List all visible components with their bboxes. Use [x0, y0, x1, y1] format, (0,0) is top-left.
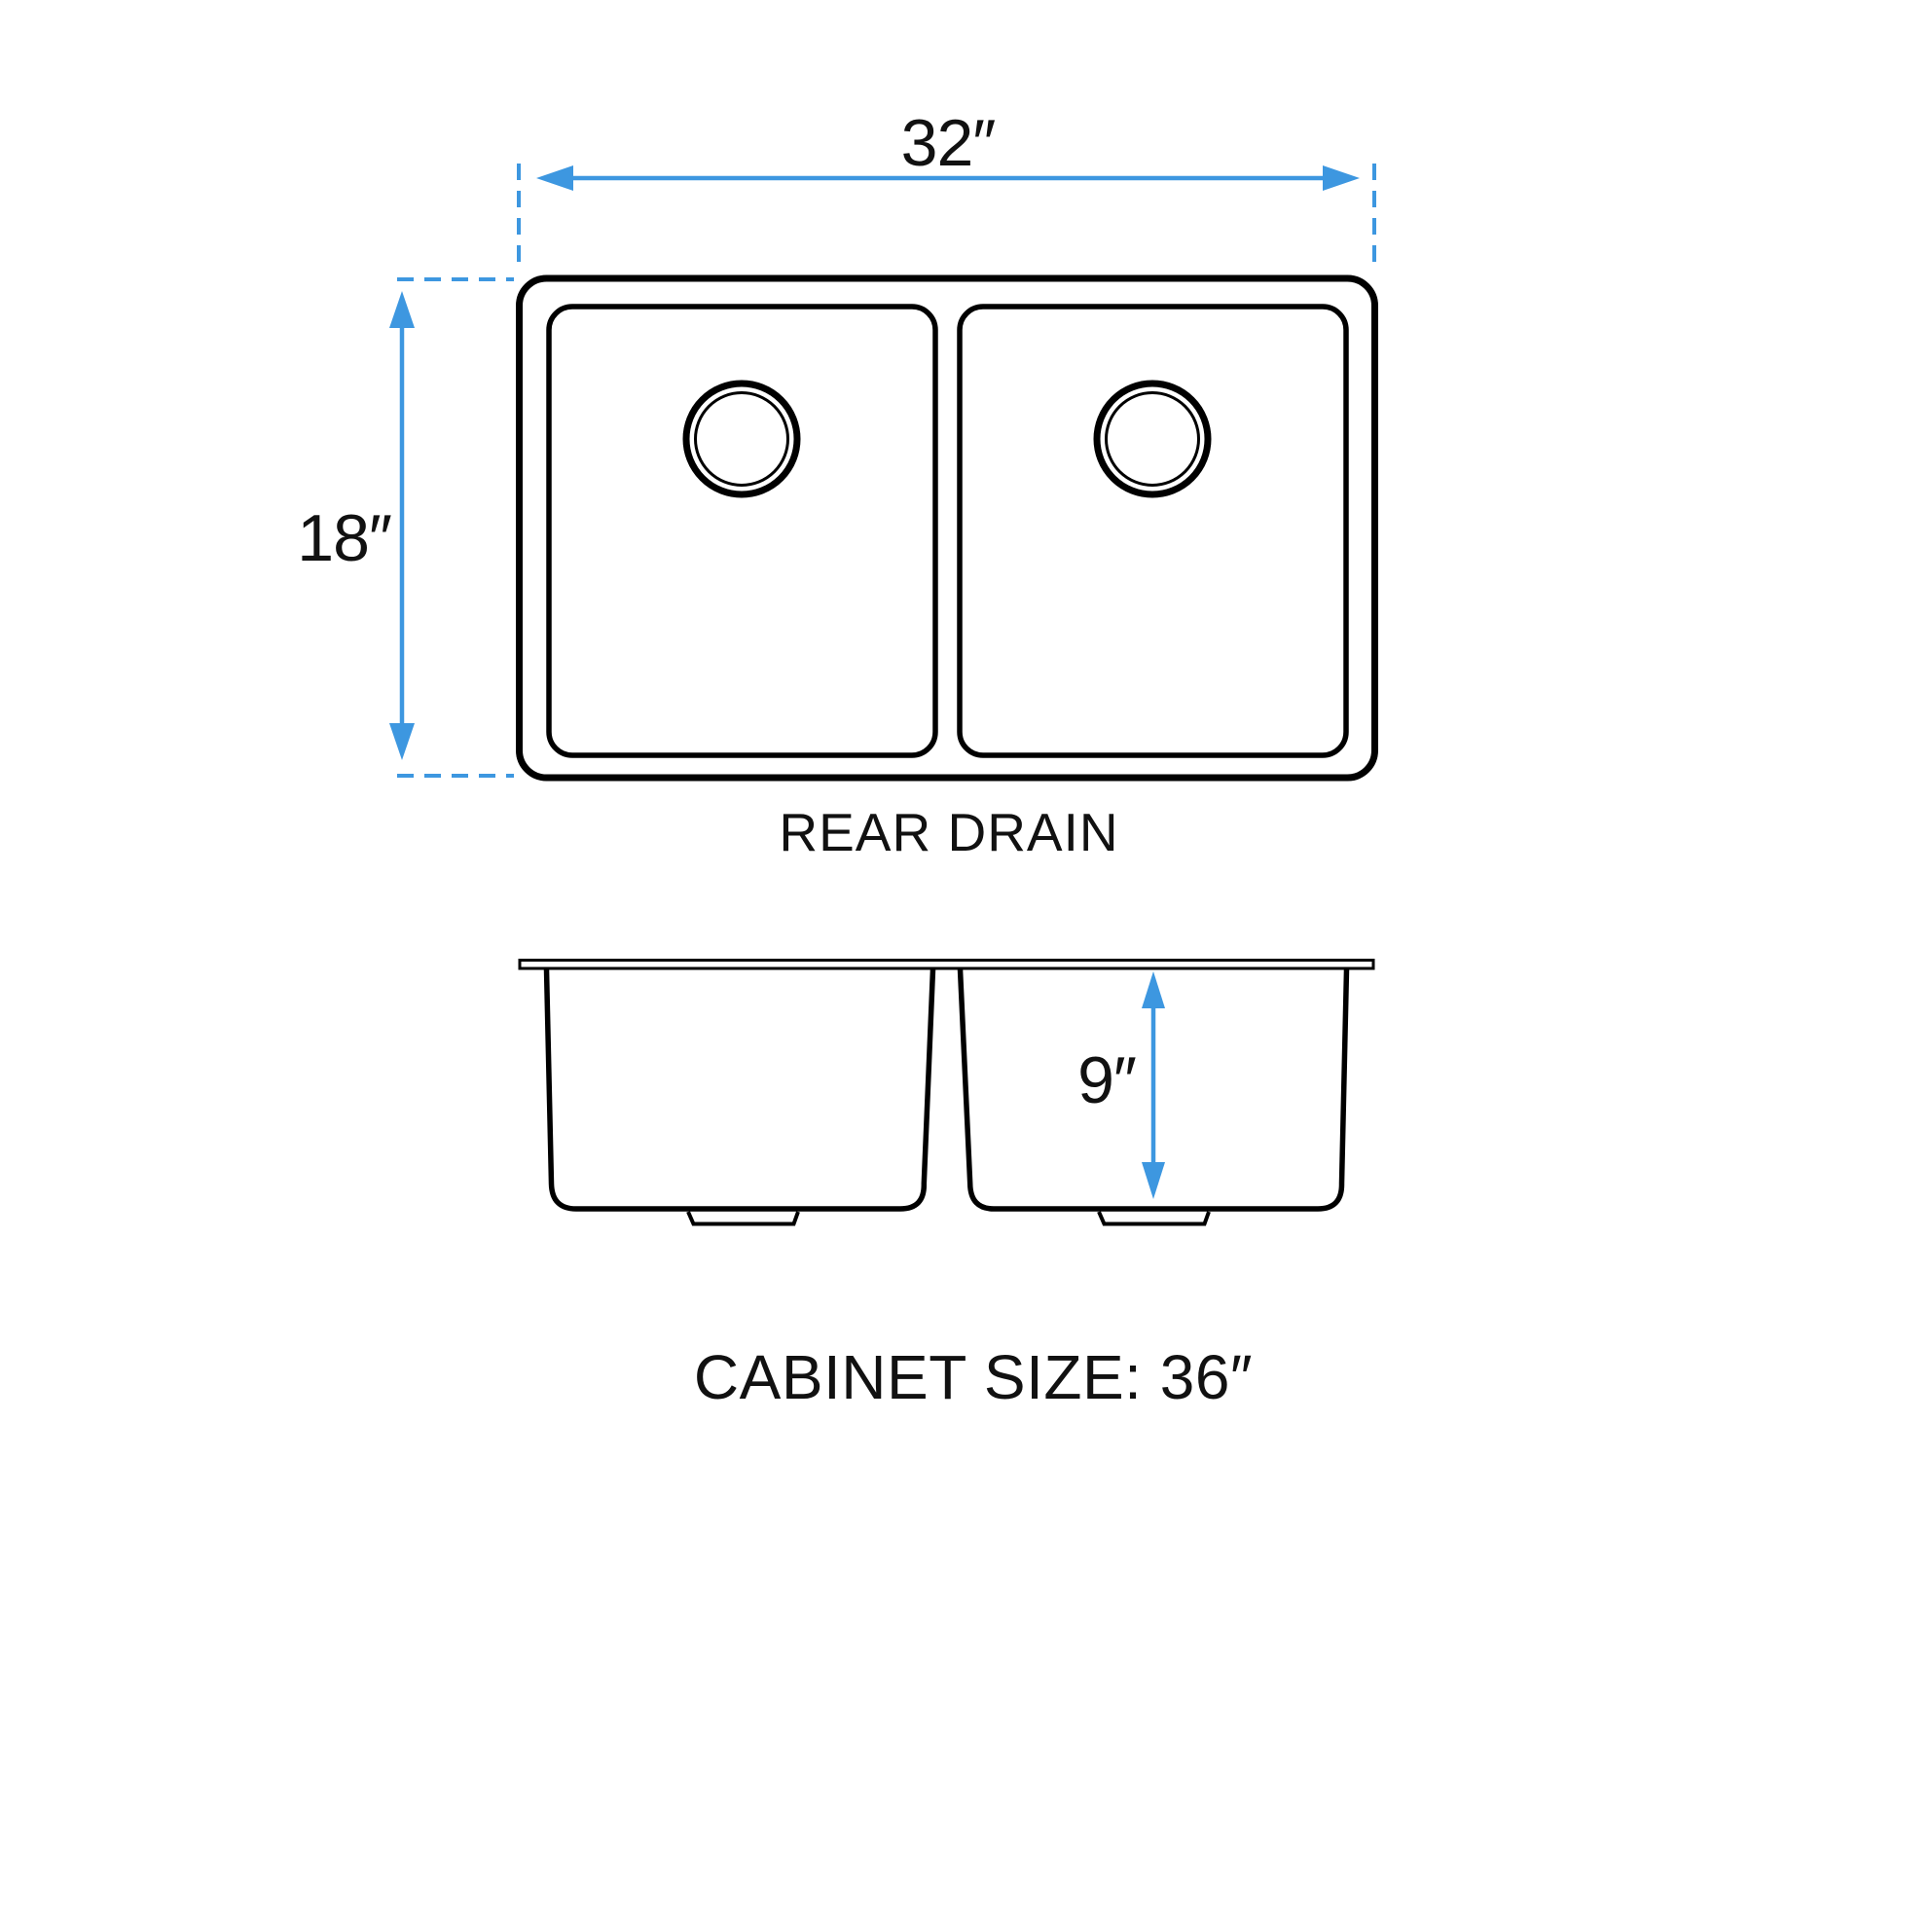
depth-arrowhead-top-icon: [389, 291, 415, 328]
bowl-depth-dimension-label: 9″: [1077, 1043, 1136, 1117]
depth-arrowhead-bottom-icon: [389, 723, 415, 760]
rear-drain-caption: REAR DRAIN: [779, 802, 1118, 862]
right-drain-fitting: [1099, 1212, 1209, 1224]
right-bowl-outline: [960, 307, 1346, 755]
depth-dimension: 18″: [297, 279, 514, 776]
right-drain-ring-icon: [1097, 383, 1208, 494]
sink-side-view: [520, 961, 1373, 1224]
width-dimension-label: 32″: [901, 106, 996, 180]
left-bowl-profile: [547, 969, 933, 1209]
sink-spec-diagram: 32″ 18″ REAR DRAIN 9″ CABINET SIZE: 36″: [0, 0, 1932, 1932]
width-arrowhead-right-icon: [1323, 165, 1360, 191]
bowl-depth-arrowhead-bottom-icon: [1142, 1162, 1165, 1199]
depth-dimension-label: 18″: [297, 501, 391, 575]
width-arrowhead-left-icon: [536, 165, 573, 191]
width-dimension: 32″: [519, 106, 1374, 273]
sink-rim-bar: [520, 961, 1373, 969]
right-drain-inner-ring-icon: [1107, 393, 1199, 486]
left-drain-fitting: [688, 1212, 798, 1224]
left-drain-ring-icon: [686, 383, 797, 494]
bowl-depth-dimension: 9″: [1077, 971, 1165, 1199]
left-drain-inner-ring-icon: [696, 393, 788, 486]
sink-rim-outline: [520, 278, 1375, 778]
left-bowl-outline: [549, 307, 935, 755]
sink-top-view: [520, 278, 1375, 778]
cabinet-size-caption: CABINET SIZE: 36″: [694, 1342, 1253, 1412]
bowl-depth-arrowhead-top-icon: [1142, 971, 1165, 1008]
